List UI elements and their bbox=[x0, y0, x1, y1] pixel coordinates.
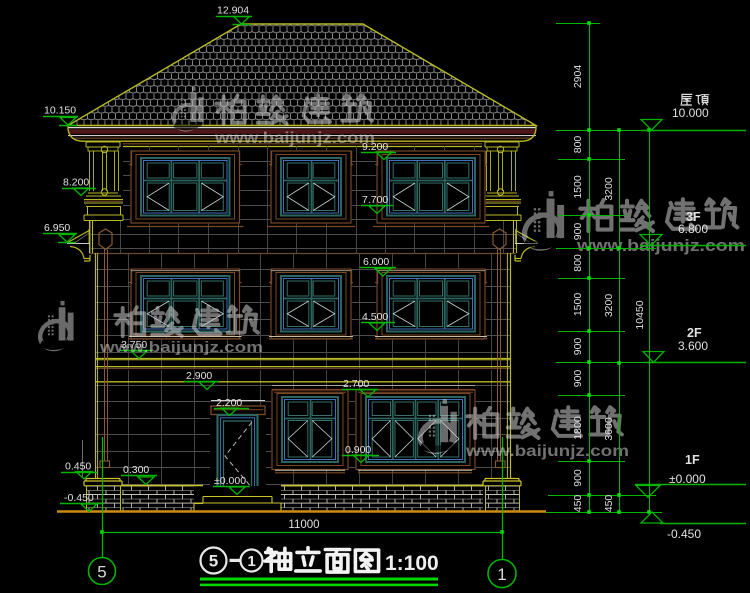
svg-text:3200: 3200 bbox=[603, 294, 615, 318]
svg-text:800: 800 bbox=[572, 254, 584, 272]
svg-text:6.000: 6.000 bbox=[363, 256, 389, 268]
svg-text:0.900: 0.900 bbox=[345, 444, 371, 456]
svg-text:0.300: 0.300 bbox=[123, 464, 149, 476]
svg-text:450: 450 bbox=[572, 495, 584, 513]
svg-text:0.450: 0.450 bbox=[65, 461, 91, 473]
svg-text:3600: 3600 bbox=[603, 417, 615, 441]
svg-text:1: 1 bbox=[497, 565, 506, 584]
svg-text:2.200: 2.200 bbox=[216, 397, 242, 409]
svg-text:2.700: 2.700 bbox=[343, 378, 369, 390]
svg-text:5: 5 bbox=[209, 552, 218, 571]
svg-text:-0.450: -0.450 bbox=[667, 527, 701, 541]
svg-text:1F: 1F bbox=[685, 453, 700, 467]
svg-text:12.904: 12.904 bbox=[217, 5, 249, 17]
svg-text:5: 5 bbox=[97, 563, 106, 582]
svg-text:8.200: 8.200 bbox=[63, 177, 89, 189]
svg-text:±0.000: ±0.000 bbox=[214, 475, 246, 487]
svg-text:1: 1 bbox=[247, 553, 255, 570]
svg-text:-0.450: -0.450 bbox=[64, 492, 94, 504]
svg-text:11000: 11000 bbox=[288, 519, 319, 531]
svg-text:4.500: 4.500 bbox=[362, 311, 388, 323]
svg-text:2.900: 2.900 bbox=[186, 370, 212, 382]
svg-text:3.600: 3.600 bbox=[678, 339, 708, 353]
svg-text:10.150: 10.150 bbox=[44, 105, 76, 117]
svg-text:www.baijunjz.com: www.baijunjz.com bbox=[214, 130, 375, 147]
svg-text:900: 900 bbox=[572, 338, 584, 356]
svg-text:10450: 10450 bbox=[634, 300, 646, 329]
svg-text:2904: 2904 bbox=[572, 65, 584, 89]
svg-text:1:100: 1:100 bbox=[385, 552, 439, 575]
svg-text:900: 900 bbox=[572, 370, 584, 388]
svg-text:2F: 2F bbox=[687, 326, 702, 340]
svg-text:450: 450 bbox=[603, 495, 615, 513]
svg-text:3200: 3200 bbox=[603, 177, 615, 201]
svg-text:www.baijunjz.com: www.baijunjz.com bbox=[99, 339, 263, 356]
svg-text:7.700: 7.700 bbox=[362, 194, 388, 206]
svg-text:10.000: 10.000 bbox=[672, 106, 709, 120]
svg-text:1500: 1500 bbox=[572, 175, 584, 199]
svg-text:800: 800 bbox=[572, 136, 584, 154]
svg-text:1800: 1800 bbox=[572, 416, 584, 440]
svg-text:6.950: 6.950 bbox=[44, 222, 70, 234]
svg-text:www.baijunjz.com: www.baijunjz.com bbox=[465, 443, 629, 460]
svg-text:6.800: 6.800 bbox=[678, 222, 708, 236]
svg-text:900: 900 bbox=[572, 223, 584, 241]
svg-text:900: 900 bbox=[572, 469, 584, 487]
svg-text:1500: 1500 bbox=[572, 293, 584, 317]
